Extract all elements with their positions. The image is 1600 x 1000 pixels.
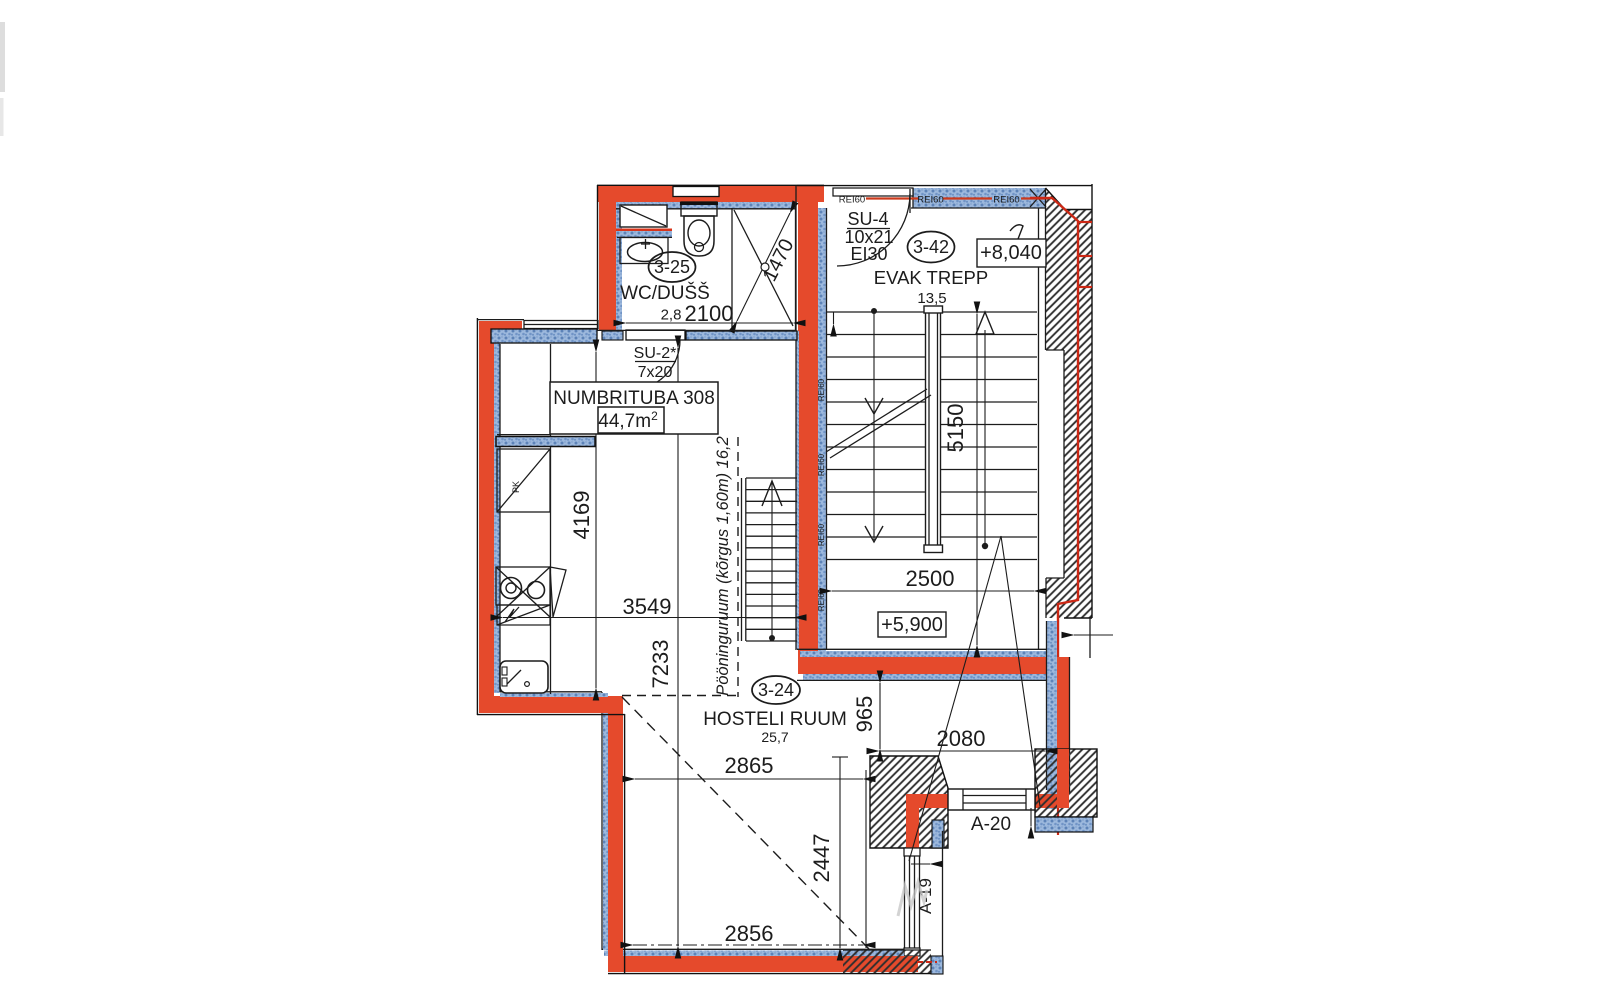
svg-text:965: 965 xyxy=(852,696,877,733)
svg-text:2,8: 2,8 xyxy=(661,307,682,324)
svg-text:Pööninguruum (kõrgus 1,60m) 16: Pööninguruum (kõrgus 1,60m) 16,2 xyxy=(714,436,732,696)
svg-text:REI60: REI60 xyxy=(993,195,1019,206)
svg-text:REI60: REI60 xyxy=(817,588,826,611)
svg-text:+8,040: +8,040 xyxy=(980,242,1042,264)
svg-text:2500: 2500 xyxy=(906,566,955,591)
svg-text:EVAK TREPP: EVAK TREPP xyxy=(874,267,988,288)
svg-text:WC/DUŠŠ: WC/DUŠŠ xyxy=(620,282,710,304)
svg-text:2447: 2447 xyxy=(809,834,834,883)
svg-text:NUMBRITUBA 308: NUMBRITUBA 308 xyxy=(553,388,715,409)
svg-text:5150: 5150 xyxy=(943,404,968,453)
svg-text:2080: 2080 xyxy=(937,726,986,751)
svg-text:A-20: A-20 xyxy=(971,814,1011,835)
svg-text:3-24: 3-24 xyxy=(758,680,794,700)
svg-text:EI30: EI30 xyxy=(850,244,887,264)
svg-text:+5,900: +5,900 xyxy=(881,614,943,636)
svg-text:SU-4: SU-4 xyxy=(847,209,888,229)
svg-text:7x20: 7x20 xyxy=(638,364,673,381)
svg-text:PK: PK xyxy=(511,481,521,493)
svg-text:7233: 7233 xyxy=(648,640,673,689)
svg-text:HOSTELI RUUM: HOSTELI RUUM xyxy=(703,709,847,730)
svg-text:SU-2*: SU-2* xyxy=(634,345,677,362)
svg-text:2856: 2856 xyxy=(725,921,774,946)
svg-text:2865: 2865 xyxy=(725,753,774,778)
svg-text:3549: 3549 xyxy=(623,594,672,619)
svg-text:2100: 2100 xyxy=(685,301,734,326)
svg-text:REI60: REI60 xyxy=(817,453,826,476)
svg-text:REI60: REI60 xyxy=(917,195,943,206)
svg-text:3-42: 3-42 xyxy=(913,237,949,257)
svg-text:4169: 4169 xyxy=(569,491,594,540)
svg-text:REI60: REI60 xyxy=(817,378,826,401)
svg-text:13,5: 13,5 xyxy=(917,290,946,307)
svg-text:REI60: REI60 xyxy=(817,523,826,546)
svg-text:25,7: 25,7 xyxy=(761,729,788,745)
svg-text:44,7m2: 44,7m2 xyxy=(598,409,658,432)
svg-text:3-25: 3-25 xyxy=(654,257,690,277)
